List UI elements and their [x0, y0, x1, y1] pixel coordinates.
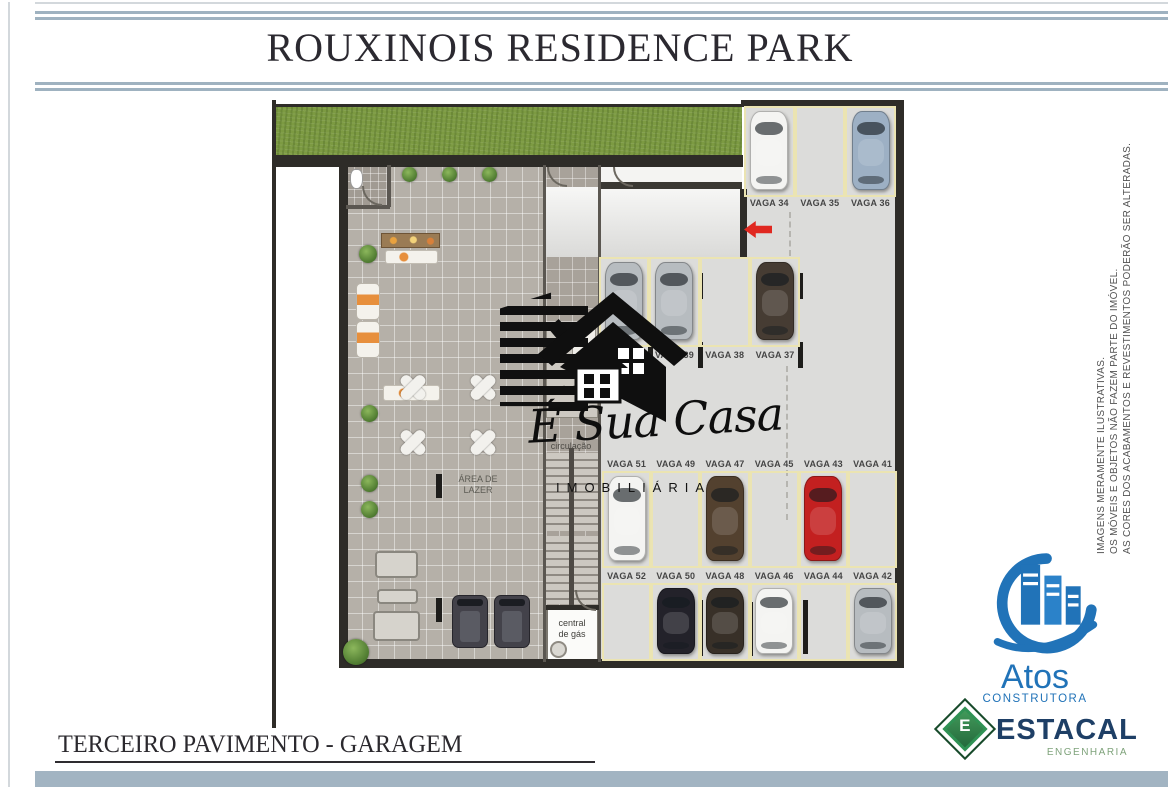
watermark-script-text: É Sua Casa — [527, 388, 750, 453]
frame-top-line — [35, 2, 1168, 4]
central-gas-line1: central — [548, 618, 596, 629]
table-with-chairs — [465, 369, 501, 405]
estacal-logo-name: ESTACAL — [996, 714, 1138, 747]
disclaimer-text: IMAGENS MERAMENTE ILUSTRATIVAS. OS MÓVEI… — [1095, 92, 1135, 554]
plant — [361, 475, 378, 492]
parking-space — [795, 106, 846, 197]
car — [755, 588, 793, 654]
bench — [385, 250, 438, 264]
car — [854, 588, 892, 654]
parking-space — [848, 471, 897, 568]
header-rule — [35, 17, 1168, 20]
gym-machine — [377, 589, 418, 604]
lane-dashed-line — [786, 366, 790, 458]
estacal-logo-tagline: ENGENHARIA — [996, 747, 1128, 758]
car — [657, 588, 695, 654]
page-title: ROUXINOIS RESIDENCE PARK — [40, 24, 1080, 71]
lounger — [356, 321, 380, 358]
header-rule — [35, 82, 1168, 85]
header-rule — [35, 88, 1168, 91]
treadmill — [494, 595, 530, 648]
watermark-subtitle: IMOBILIÁRIA — [556, 480, 711, 495]
atos-logo-name: Atos — [960, 658, 1110, 697]
floor-caption: TERCEIRO PAVIMENTO - GARAGEM — [58, 731, 462, 759]
disclaimer-line: IMAGENS MERAMENTE ILUSTRATIVAS. — [1095, 92, 1108, 554]
header-rule — [35, 11, 1168, 14]
wall-left-line — [272, 100, 276, 728]
atos-logo-tagline: CONSTRUTORA — [960, 693, 1110, 705]
lane-dashed-line — [789, 212, 793, 256]
gym-machine — [375, 551, 418, 578]
gas-tank-icon — [550, 641, 567, 658]
car — [706, 588, 744, 654]
plant — [402, 167, 417, 182]
plant — [361, 501, 378, 518]
disclaimer-line: OS MÓVEIS E OBJETOS NÃO FAZEM PARTE DO I… — [1108, 92, 1121, 554]
watermark: É Sua Casa IMOBILIÁRIA — [498, 282, 750, 510]
grass-strip — [273, 104, 742, 157]
plant — [361, 405, 378, 422]
plant — [343, 639, 369, 665]
wall-strip-right — [339, 155, 348, 668]
stair-rail — [569, 532, 574, 606]
floor-caption-underline — [55, 761, 595, 763]
atos-logo-icon — [972, 550, 1104, 662]
central-gas-label: central de gás — [548, 618, 596, 640]
frame-left-line — [8, 2, 10, 787]
lounger — [356, 283, 380, 320]
flyer: ROUXINOIS RESIDENCE PARK VAGA 34VAGA 35V… — [0, 0, 1170, 791]
bottom-bar — [35, 771, 1168, 787]
car — [756, 262, 794, 340]
wall-bathroom-right — [387, 165, 391, 207]
ramp — [546, 187, 742, 257]
car — [804, 476, 842, 561]
plant — [359, 245, 377, 263]
table-with-chairs — [395, 424, 431, 460]
side-strip — [276, 155, 339, 668]
table-with-chairs — [465, 424, 501, 460]
parking-space-label: VAGA 37 — [746, 350, 804, 362]
parking-space-label: VAGA 36 — [841, 198, 900, 210]
estacal-diamond-icon: E — [934, 698, 996, 760]
wall-bathroom-bottom — [346, 205, 390, 209]
parking-space — [750, 471, 799, 568]
parking-space-label: VAGA 42 — [844, 571, 901, 583]
table-with-chairs — [395, 369, 431, 405]
plant — [442, 167, 457, 182]
disclaimer-line: AS CORES DOS ACABAMENTOS E REVESTIMENTOS… — [1121, 92, 1134, 554]
column-mark — [436, 474, 442, 498]
parking-space-label: VAGA 41 — [844, 459, 901, 471]
bbq-counter — [381, 233, 440, 248]
car — [750, 111, 788, 190]
column-mark — [436, 598, 442, 622]
treadmill — [452, 595, 488, 648]
toilet — [350, 169, 363, 189]
gym-machine — [373, 611, 420, 641]
plant — [482, 167, 497, 182]
parking-space — [799, 583, 848, 661]
central-gas-line2: de gás — [548, 629, 596, 640]
parking-space — [602, 583, 651, 661]
car — [852, 111, 890, 190]
estacal-icon-letter: E — [959, 716, 970, 736]
